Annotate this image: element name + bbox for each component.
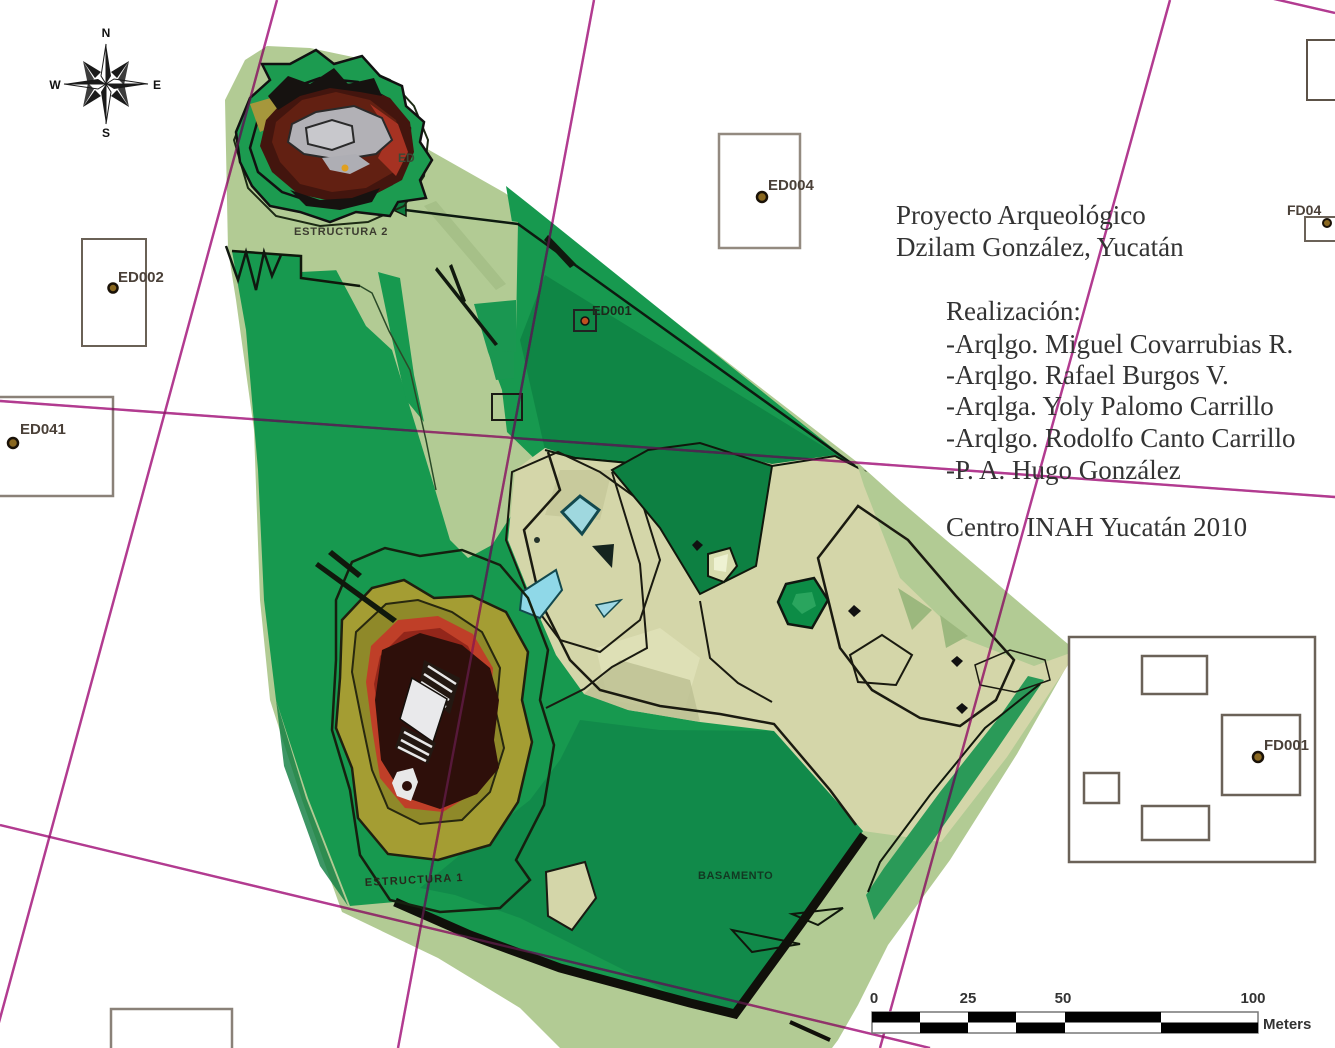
svg-text:ED002: ED002 [118, 269, 164, 286]
svg-text:Proyecto Arqueológico: Proyecto Arqueológico [896, 200, 1146, 230]
svg-text:E: E [153, 78, 161, 92]
svg-text:Realización:: Realización: [946, 296, 1081, 326]
svg-text:Dzilam González, Yucatán: Dzilam González, Yucatán [896, 232, 1184, 262]
svg-text:100: 100 [1240, 990, 1265, 1007]
svg-text:-Arqlgo. Rodolfo Canto Carrill: -Arqlgo. Rodolfo Canto Carrillo [946, 423, 1295, 453]
svg-text:FD001: FD001 [1264, 737, 1309, 754]
svg-text:25: 25 [960, 990, 977, 1007]
svg-text:-Arqlgo. Miguel Covarrubias R.: -Arqlgo. Miguel Covarrubias R. [946, 329, 1293, 359]
svg-text:ESTRUCTURA 2: ESTRUCTURA 2 [294, 226, 388, 238]
svg-text:ED001: ED001 [592, 303, 632, 318]
svg-text:N: N [102, 26, 111, 40]
svg-text:ED: ED [398, 151, 415, 165]
svg-text:Meters: Meters [1263, 1016, 1311, 1033]
svg-text:-Arqlgo. Rafael Burgos V.: -Arqlgo. Rafael Burgos V. [946, 360, 1229, 390]
svg-text:50: 50 [1055, 990, 1072, 1007]
svg-text:ED004: ED004 [768, 177, 815, 194]
svg-text:ED041: ED041 [20, 421, 66, 438]
svg-text:0: 0 [870, 990, 878, 1007]
svg-text:BASAMENTO: BASAMENTO [698, 870, 773, 882]
svg-text:FD04: FD04 [1287, 202, 1321, 218]
svg-text:W: W [49, 78, 61, 92]
svg-text:Centro INAH Yucatán 2010: Centro INAH Yucatán 2010 [946, 512, 1247, 542]
svg-text:-P. A. Hugo González: -P. A. Hugo González [946, 455, 1181, 485]
svg-text:-Arqlga. Yoly Palomo Carrillo: -Arqlga. Yoly Palomo Carrillo [946, 391, 1274, 421]
svg-text:S: S [102, 126, 110, 140]
